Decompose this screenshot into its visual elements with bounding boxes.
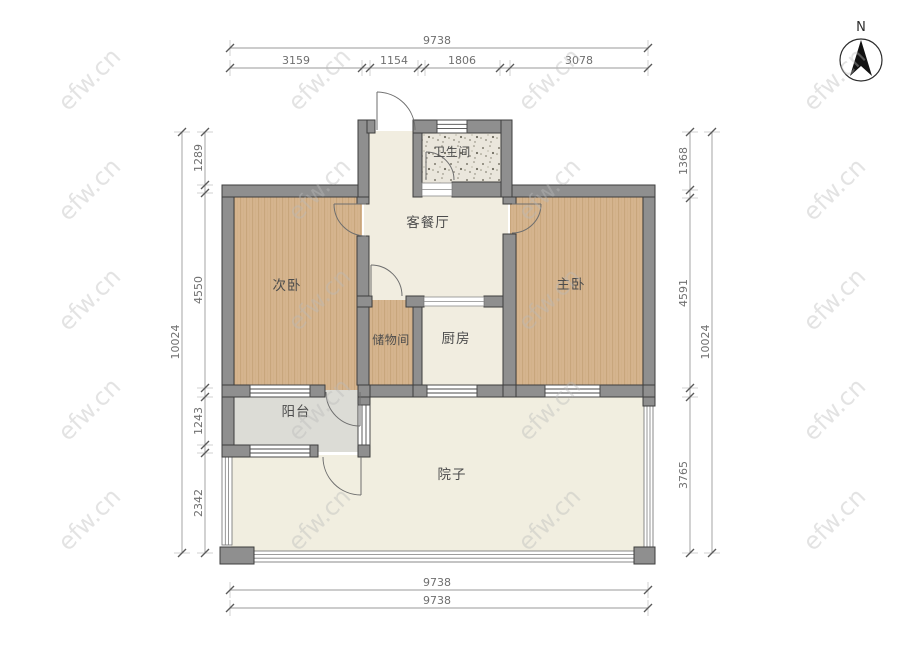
fence-left — [222, 457, 232, 545]
room-label-storage: 储物间 — [372, 332, 410, 347]
watermark: efw.cn — [52, 152, 126, 226]
room-label-secondary-bedroom: 次卧 — [273, 278, 302, 294]
floor-plan-screenshot: 卫生间 客餐厅 次卧 主卧 储物间 厨房 阳台 院子 9738 3159 115… — [0, 0, 917, 656]
room-label-kitchen: 厨房 — [442, 331, 471, 347]
dimension-left: 10024 1289 4550 1243 2342 — [169, 128, 213, 557]
north-label: N — [856, 20, 866, 35]
floor-plan: 卫生间 客餐厅 次卧 主卧 储物间 厨房 阳台 院子 9738 3159 115… — [0, 0, 917, 656]
watermark: efw.cn — [797, 372, 871, 446]
fence-corner-post-left — [220, 547, 254, 564]
dim-top-overall: 9738 — [423, 34, 451, 47]
fence-bottom — [252, 551, 636, 562]
window-secondary-bedroom — [250, 385, 310, 397]
dim-right-seg-1: 1368 — [677, 147, 690, 175]
watermark: efw.cn — [797, 482, 871, 556]
watermark: efw.cn — [52, 262, 126, 336]
dim-right-seg-3: 3765 — [677, 461, 690, 489]
dim-top-seg-2: 1154 — [380, 54, 408, 67]
watermark: efw.cn — [797, 42, 871, 116]
room-label-living-dining: 客餐厅 — [406, 214, 450, 231]
dimension-right: 1368 4591 3765 10024 — [677, 128, 720, 557]
room-label-bathroom: 卫生间 — [433, 145, 471, 159]
entry-door — [377, 92, 415, 130]
watermark: efw.cn — [52, 482, 126, 556]
dim-top-seg-3: 1806 — [448, 54, 476, 67]
dim-left-seg-4: 2342 — [192, 489, 205, 517]
dim-left-seg-2: 4550 — [192, 276, 205, 304]
watermark: efw.cn — [52, 372, 126, 446]
watermark: efw.cn — [797, 262, 871, 336]
dim-bottom-line-2: 9738 — [423, 594, 451, 607]
fence-corner-post-right — [634, 547, 655, 564]
dimension-bottom: 9738 9738 — [226, 576, 652, 616]
dim-right-overall: 10024 — [699, 325, 712, 360]
fence-post-top-right — [643, 397, 655, 406]
watermark: efw.cn — [797, 152, 871, 226]
threshold-bathroom — [422, 183, 452, 196]
window-kitchen — [427, 385, 477, 397]
entry-corridor-floor — [366, 131, 416, 198]
dim-left-seg-3: 1243 — [192, 407, 205, 435]
dim-left-overall: 10024 — [169, 325, 182, 360]
dim-left-seg-1: 1289 — [192, 144, 205, 172]
living-dining-floor — [364, 190, 508, 310]
window-balcony-bottom — [250, 445, 310, 457]
fence-right — [644, 405, 653, 550]
window-bathroom-top — [437, 120, 467, 133]
watermark: efw.cn — [512, 42, 586, 116]
dimension-top: 9738 3159 1154 1806 3078 — [226, 34, 652, 76]
threshold-kitchen — [424, 297, 484, 306]
dim-right-seg-2: 4591 — [677, 279, 690, 307]
room-label-courtyard: 院子 — [438, 467, 467, 483]
courtyard-floor-right — [365, 396, 646, 553]
dim-bottom-line-1: 9738 — [423, 576, 451, 589]
watermark: efw.cn — [52, 42, 126, 116]
dim-top-seg-1: 3159 — [282, 54, 310, 67]
